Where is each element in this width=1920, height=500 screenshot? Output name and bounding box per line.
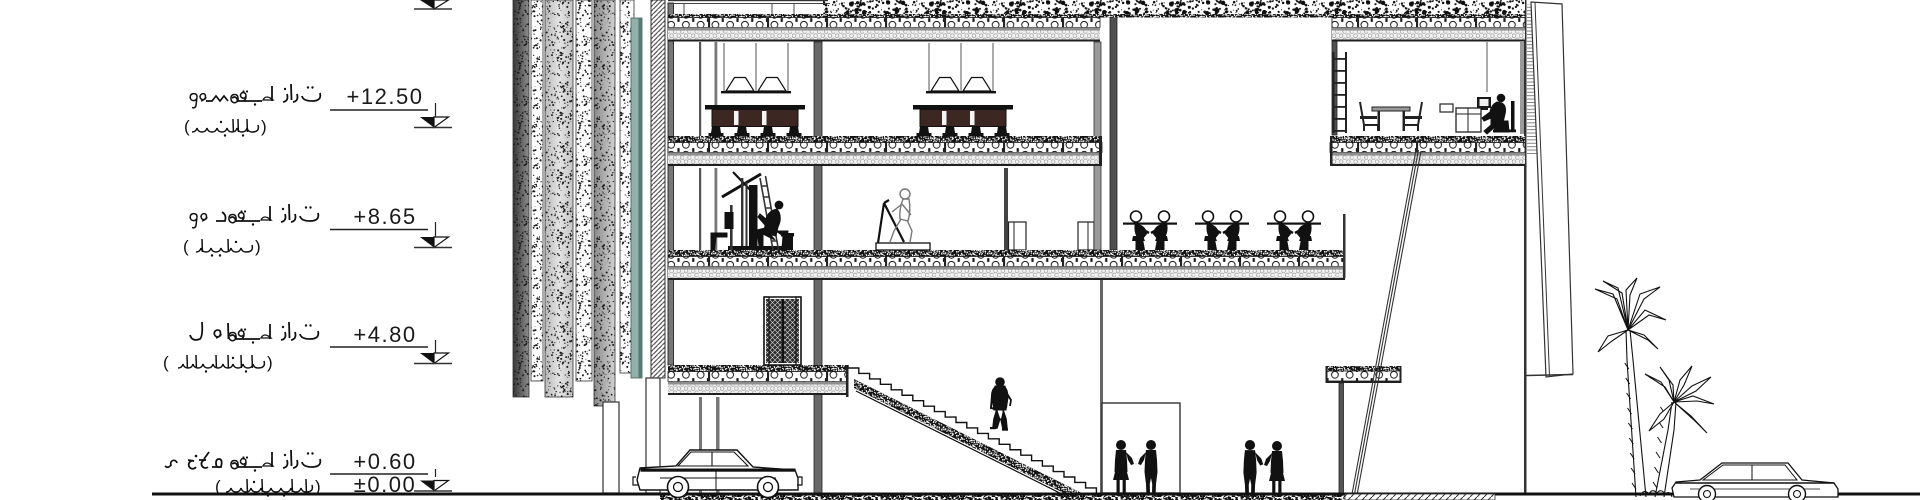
svg-text:(: ( xyxy=(183,237,189,256)
svg-text:+12.50: +12.50 xyxy=(347,84,424,109)
svg-text:(: ( xyxy=(163,353,169,372)
svg-text:): ) xyxy=(255,237,261,256)
svg-text:(: ( xyxy=(184,117,190,136)
svg-text:): ) xyxy=(261,117,267,136)
svg-text:+8.65: +8.65 xyxy=(353,204,416,229)
svg-text:+4.80: +4.80 xyxy=(353,322,416,347)
svg-text:+0.60: +0.60 xyxy=(353,449,416,474)
svg-text:): ) xyxy=(267,353,273,372)
